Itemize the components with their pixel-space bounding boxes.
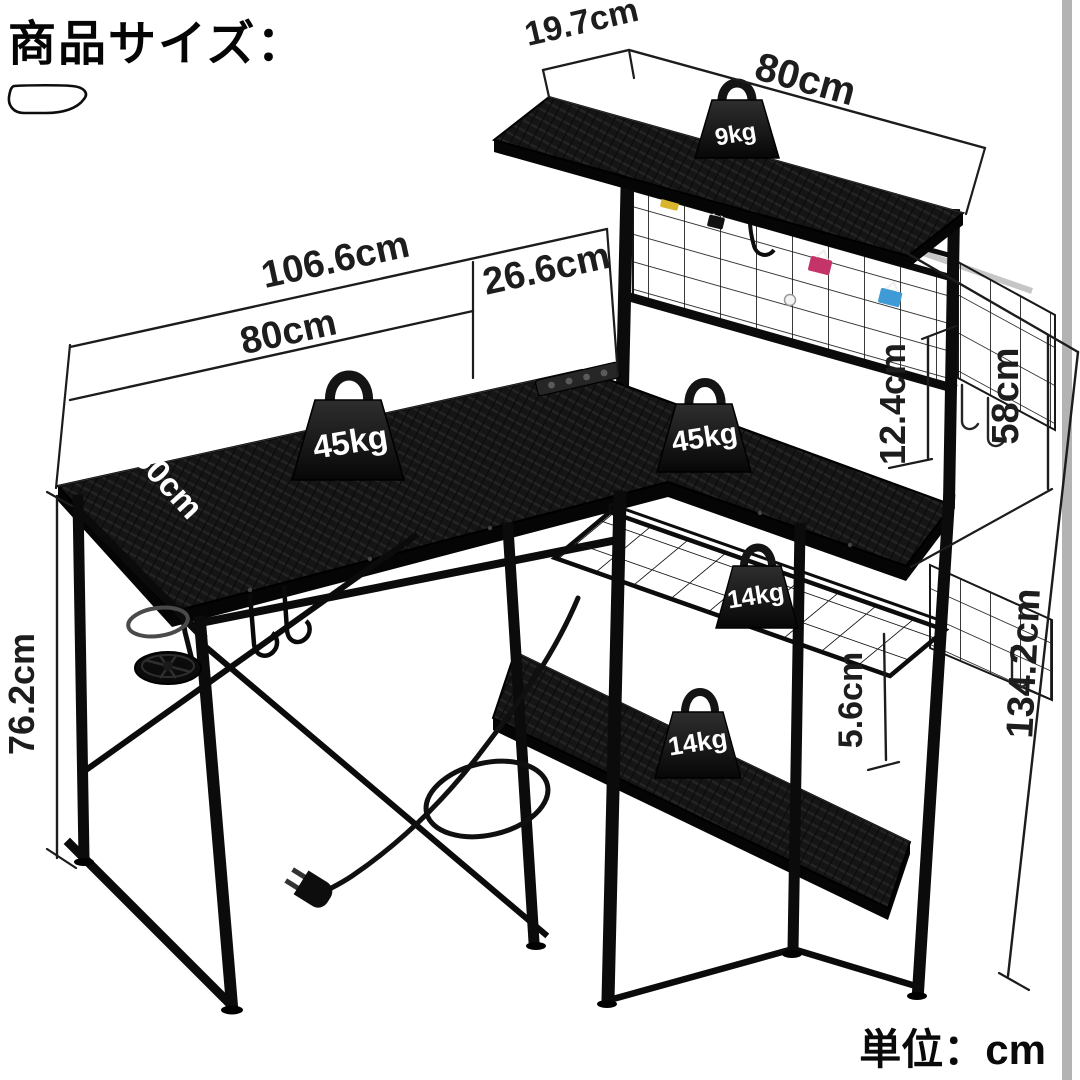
cross-brace xyxy=(200,642,545,934)
desk-height-label: 76.2cm xyxy=(1,633,42,755)
product-size-diagram-page: 9kg 50cm xyxy=(0,0,1080,1080)
unit-note: 単位：cm xyxy=(859,1016,1046,1077)
top-shelf-depth-label: 19.7cm xyxy=(521,0,642,54)
hutch-clearance-label: 12.4cm xyxy=(872,343,913,465)
peg-knob-icon xyxy=(785,295,796,306)
weight-9kg: 9kg xyxy=(695,83,779,158)
main-desk-width-label: 80cm xyxy=(236,301,340,363)
page-edge-bar xyxy=(1062,0,1072,1080)
return-width-label: 26.6cm xyxy=(479,235,614,304)
hutch-right-post xyxy=(949,215,954,503)
plug-icon xyxy=(282,863,337,912)
weight-45kg-side: 45kg xyxy=(657,383,751,473)
shelf-unit-middle-leg xyxy=(793,528,800,950)
shelf-gap-label: 5.6cm xyxy=(832,652,870,748)
hutch-height-label: 58cm xyxy=(985,347,1027,444)
total-width-label: 106.6cm xyxy=(258,224,414,297)
size-diagram: 9kg 50cm xyxy=(0,0,1080,1080)
callout-tag-shape xyxy=(9,85,86,113)
total-height-label: 134.2cm xyxy=(999,587,1049,739)
desk-back-left-leg xyxy=(78,500,84,858)
weight-14kg-bottom-shelf: 14kg xyxy=(655,692,741,778)
side-mesh-hook-icon xyxy=(962,385,978,429)
bottom-rails xyxy=(613,949,919,999)
weight-45kg-main: 45kg xyxy=(292,376,404,481)
page-title: 商品サイズ： xyxy=(8,4,307,74)
top-shelf-length-label: 80cm xyxy=(750,45,860,115)
